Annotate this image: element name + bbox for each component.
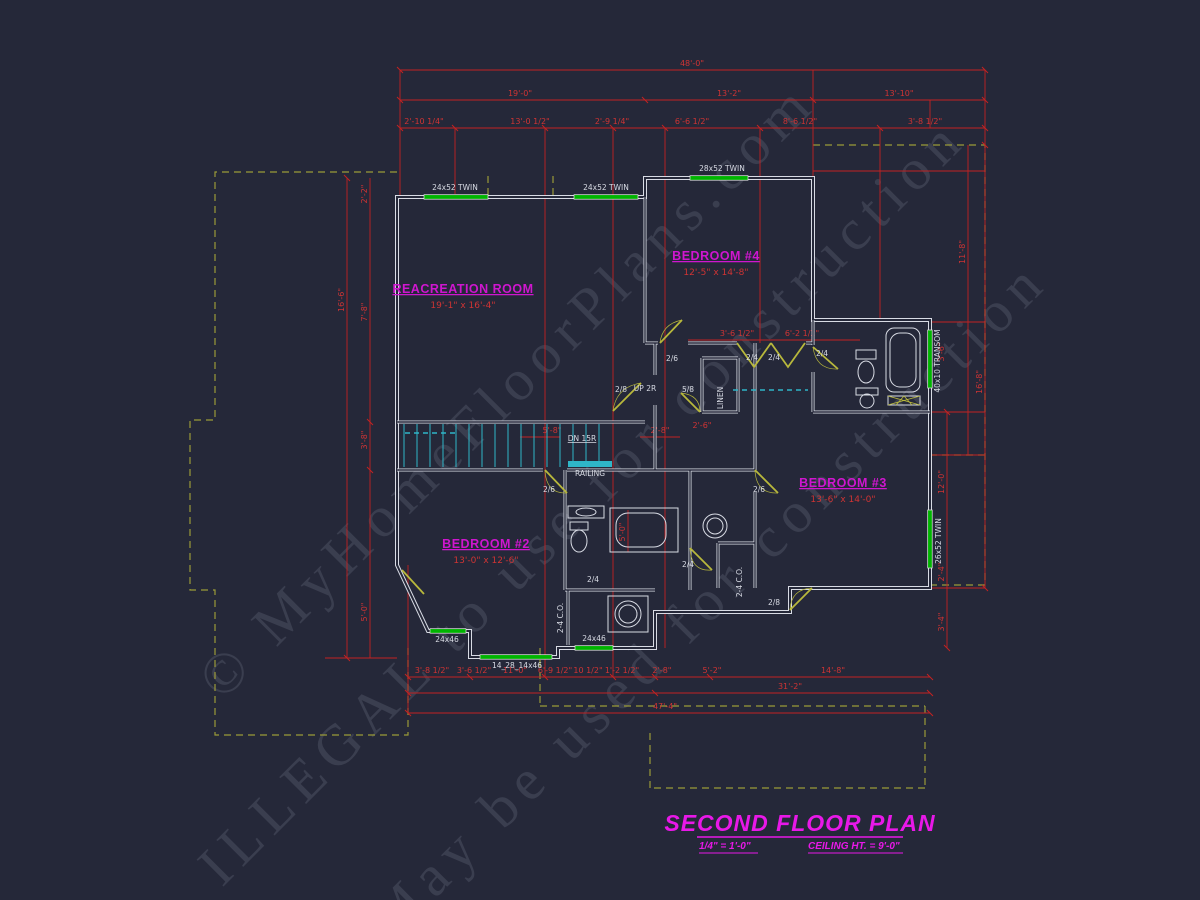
door-label: 2/4 xyxy=(682,560,694,569)
room-size-reacreation-room: 19'-1" x 16'-4" xyxy=(430,301,495,311)
dim-label: 47'-4" xyxy=(653,702,677,711)
window xyxy=(575,646,613,651)
dim-label: 10 1/2" xyxy=(573,666,602,675)
door-label: 2/8 xyxy=(615,385,627,394)
dim-label: 16'-6" xyxy=(337,288,346,312)
window-label: 24x52 TWIN xyxy=(432,183,478,192)
room-label-bedroom-2: BEDROOM #2 xyxy=(442,537,530,551)
dim-label: 2'-8" xyxy=(653,666,672,675)
window-label: 28x52 TWIN xyxy=(699,164,745,173)
dim-label: 6'-9 1/2" xyxy=(538,666,572,675)
dim-label: 12'-0" xyxy=(937,470,946,494)
dim-label: 7'-8" xyxy=(360,303,369,322)
window xyxy=(574,195,638,200)
dim-label: 48'-0" xyxy=(680,59,704,68)
window-label: 26x52 TWIN xyxy=(934,518,943,564)
dim-label: 2'-9 1/4" xyxy=(595,117,629,126)
room-label-reacreation-room: REACREATION ROOM xyxy=(392,282,533,296)
stair-down-label: DN 15R xyxy=(568,434,597,443)
linen-label: LINEN xyxy=(716,387,725,409)
window-label: 24x52 TWIN xyxy=(583,183,629,192)
dim-label: 8'-6 1/2" xyxy=(783,117,817,126)
cased-opening-label: 2-4 C.O. xyxy=(556,603,565,633)
door-label: 2/6 xyxy=(753,485,765,494)
window-label: 14_28_14x46 xyxy=(492,661,542,670)
door-label: 2/4 xyxy=(816,349,828,358)
dim-label: 3'-4" xyxy=(937,613,946,632)
second-floor-plan-drawing: © MyHomeFloorPlans.com ILLEGAL to use fo… xyxy=(0,0,1200,900)
dim-label: 3'-8" xyxy=(360,431,369,450)
window-label: 24x46 xyxy=(582,634,606,643)
dim-label: 5'-2" xyxy=(703,666,722,675)
room-label-bedroom-4: BEDROOM #4 xyxy=(672,249,760,263)
room-size-bedroom-3: 13'-6" x 14'-0" xyxy=(810,495,875,505)
window xyxy=(928,510,933,568)
window-label: 40x10 TRANSOM xyxy=(933,329,942,392)
stair-railing-bar xyxy=(568,461,612,467)
toilet-tank xyxy=(856,350,876,359)
door-label: 2/4 xyxy=(746,353,758,362)
title-block: SECOND FLOOR PLAN 1/4" = 1'-0" CEILING H… xyxy=(664,810,935,853)
ceiling-height: CEILING HT. = 9'-0" xyxy=(808,841,900,852)
dim-label: 2'-10 1/4" xyxy=(404,117,443,126)
plan-title: SECOND FLOOR PLAN xyxy=(664,810,935,836)
dim-label: 2'-4" xyxy=(937,563,946,582)
dim-label: 19'-0" xyxy=(508,89,532,98)
dim-label: 13'-10" xyxy=(884,89,913,98)
dim-label: 31'-2" xyxy=(778,682,802,691)
door-label: 2/6 xyxy=(543,485,555,494)
door-label: 2/8 xyxy=(768,598,780,607)
dim-label: 3'-6 1/2" xyxy=(457,666,491,675)
dim-label: 14'-8" xyxy=(821,666,845,675)
toilet-bowl xyxy=(858,361,874,383)
dim-label: 2'-2" xyxy=(360,185,369,204)
cased-opening-label: 2-4 C.O. xyxy=(735,567,744,597)
dim-label: 6'-6 1/2" xyxy=(675,117,709,126)
dim-label: 1'-2 1/2" xyxy=(605,666,639,675)
laundry-sink-inner xyxy=(619,605,637,623)
plan-scale: 1/4" = 1'-0" xyxy=(699,841,751,852)
door-label: 5/8 xyxy=(682,385,694,394)
dim-label: 3'-8 1/2" xyxy=(415,666,449,675)
window xyxy=(690,176,748,181)
dim-label: 5'-0" xyxy=(618,523,627,542)
window-transom xyxy=(928,330,933,388)
room-size-bedroom-2: 13'-0" x 12'-6" xyxy=(453,556,518,566)
dim-label: 13'-0 1/2" xyxy=(510,117,549,126)
dim-label: 2'-6" xyxy=(693,421,712,430)
window xyxy=(480,655,552,660)
room-size-bedroom-4: 12'-5" x 14'-8" xyxy=(683,268,748,278)
dim-label: 5'-0" xyxy=(360,603,369,622)
stair-up-label: UP 2R xyxy=(634,384,656,393)
dim-label: 11'-8" xyxy=(958,240,967,264)
dim-label: 3'-6 1/2" xyxy=(720,329,754,338)
roof-dashed-ticks xyxy=(488,176,553,196)
window xyxy=(424,195,488,200)
door-label: 2/6 xyxy=(666,354,678,363)
dim-label: 16'-8" xyxy=(975,370,984,394)
door-label: 2/4 xyxy=(587,575,599,584)
floor-plan-canvas: © MyHomeFloorPlans.com ILLEGAL to use fo… xyxy=(0,0,1200,900)
dim-label: 2'-8" xyxy=(651,426,670,435)
shower-drain-inner xyxy=(707,518,723,534)
room-label-bedroom-3: BEDROOM #3 xyxy=(799,476,887,490)
window xyxy=(430,629,466,634)
railing-label: RAILING xyxy=(575,469,605,478)
dim-label: 13'-2" xyxy=(717,89,741,98)
dim-label: 3'-8 1/2" xyxy=(908,117,942,126)
dim-label: 5'-8" xyxy=(543,426,562,435)
window-label: 24x46 xyxy=(435,635,459,644)
door-label: 2/4 xyxy=(768,353,780,362)
